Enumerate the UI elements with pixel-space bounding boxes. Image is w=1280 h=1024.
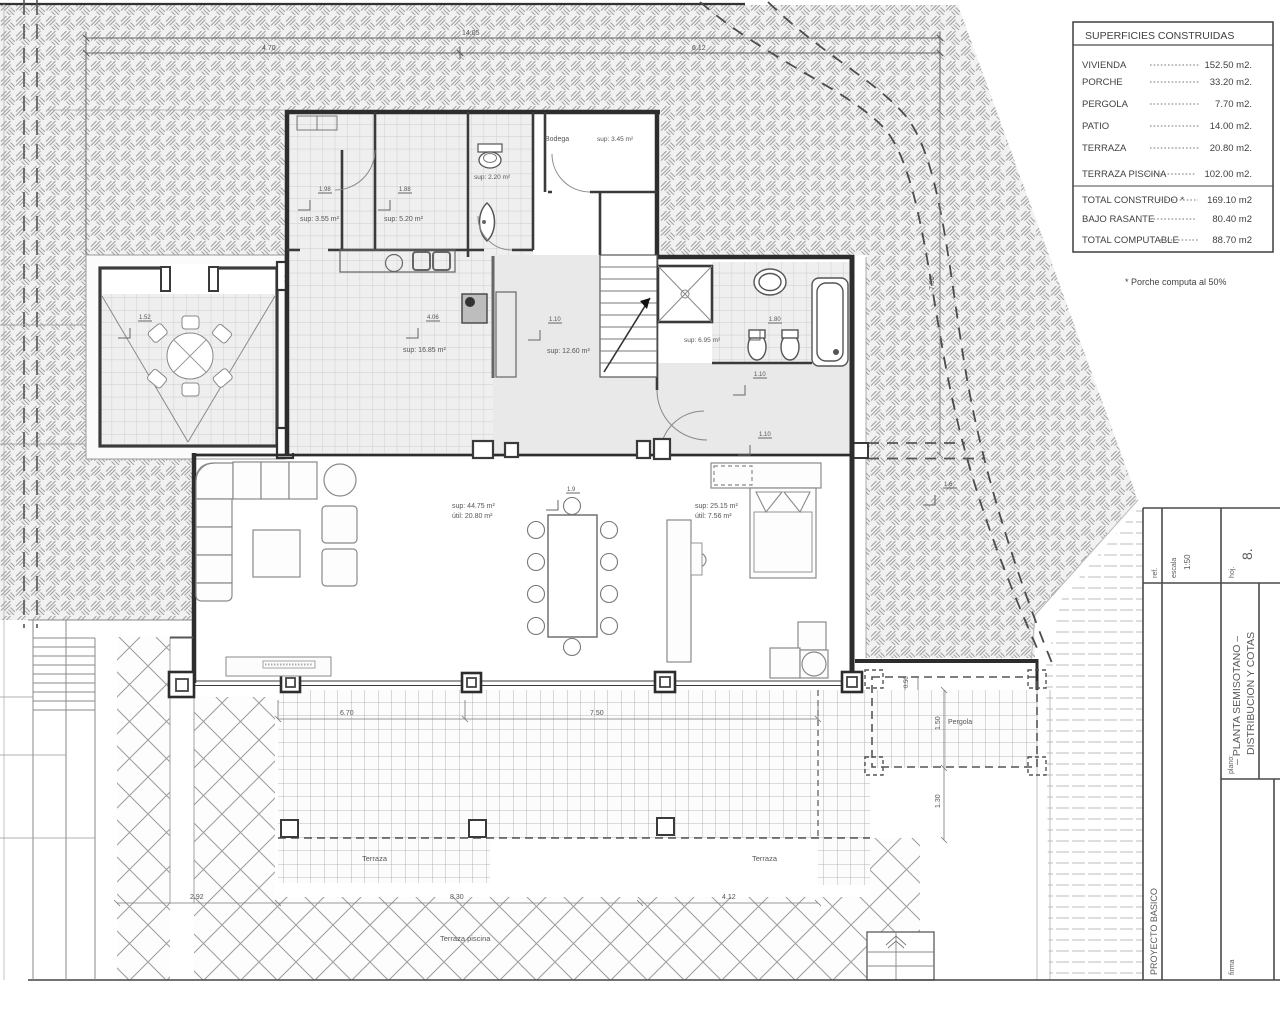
svg-text:1.10: 1.10 xyxy=(759,432,771,438)
svg-text:sup: 12.60 m²: sup: 12.60 m² xyxy=(547,348,590,355)
svg-text:Bodega: Bodega xyxy=(545,136,569,143)
svg-text:PROYECTO BASICO: PROYECTO BASICO xyxy=(1149,888,1159,975)
svg-text:sup: 3.45 m²: sup: 3.45 m² xyxy=(597,136,634,143)
svg-text:DISTRIBUCION Y COTAS: DISTRIBUCION Y COTAS xyxy=(1245,632,1257,755)
svg-text:88.70 m2: 88.70 m2 xyxy=(1212,235,1252,246)
svg-text:ref.: ref. xyxy=(1152,568,1159,578)
svg-text:0.50: 0.50 xyxy=(904,676,910,688)
svg-text:1.30: 1.30 xyxy=(935,794,942,808)
svg-text:20.80 m2.: 20.80 m2. xyxy=(1210,143,1252,154)
svg-text:sup: 3.55 m²: sup: 3.55 m² xyxy=(300,216,340,223)
svg-text:sup: 25.15 m²: sup: 25.15 m² xyxy=(695,503,738,510)
svg-text:80.40 m2: 80.40 m2 xyxy=(1212,214,1252,225)
svg-text:hoj.: hoj. xyxy=(1229,567,1236,578)
svg-text:1.10: 1.10 xyxy=(754,372,766,378)
svg-text:1.10: 1.10 xyxy=(549,317,561,323)
svg-text:1.88: 1.88 xyxy=(399,187,411,193)
svg-text:PATIO: PATIO xyxy=(1082,121,1109,132)
svg-text:6.12: 6.12 xyxy=(692,45,706,52)
svg-text:152.50 m2.: 152.50 m2. xyxy=(1204,60,1252,71)
svg-text:útil: 7.56 m²: útil: 7.56 m² xyxy=(695,513,732,520)
svg-text:BAJO RASANTE: BAJO RASANTE xyxy=(1082,214,1154,225)
svg-text:Pergola: Pergola xyxy=(948,719,972,726)
svg-text:sup: 44.75 m²: sup: 44.75 m² xyxy=(452,503,495,510)
svg-text:sup: 5.20 m²: sup: 5.20 m² xyxy=(384,216,424,223)
svg-text:TOTAL CONSTRUIDO *: TOTAL CONSTRUIDO * xyxy=(1082,195,1185,206)
svg-text:4.70: 4.70 xyxy=(262,45,276,52)
svg-text:TERRAZA PISCINA: TERRAZA PISCINA xyxy=(1082,169,1167,180)
svg-text:TOTAL COMPUTABLE: TOTAL COMPUTABLE xyxy=(1082,235,1179,246)
svg-text:7.50: 7.50 xyxy=(590,710,604,717)
svg-text:1.98: 1.98 xyxy=(319,187,331,193)
svg-text:14.05: 14.05 xyxy=(462,30,480,37)
svg-text:4.12: 4.12 xyxy=(722,894,736,901)
svg-text:1.9: 1.9 xyxy=(567,487,576,493)
svg-text:sup: 2.20 m²: sup: 2.20 m² xyxy=(474,174,511,181)
svg-text:8.30: 8.30 xyxy=(450,894,464,901)
svg-text:Terraza: Terraza xyxy=(752,854,778,863)
svg-text:Terraza: Terraza xyxy=(362,854,388,863)
svg-text:7.90: 7.90 xyxy=(929,276,936,290)
svg-text:TERRAZA: TERRAZA xyxy=(1082,143,1127,154)
svg-text:útil: 20.80 m²: útil: 20.80 m² xyxy=(452,513,493,520)
svg-text:– PLANTA SEMISOTANO –: – PLANTA SEMISOTANO – xyxy=(1231,636,1243,765)
svg-text:1:50: 1:50 xyxy=(1183,554,1192,570)
svg-text:PORCHE: PORCHE xyxy=(1082,77,1123,88)
svg-text:Terraza piscina: Terraza piscina xyxy=(440,934,491,943)
svg-text:VIVIENDA: VIVIENDA xyxy=(1082,60,1127,71)
svg-text:escala: escala xyxy=(1171,558,1178,578)
svg-text:2.92: 2.92 xyxy=(190,894,204,901)
svg-text:169.10 m2: 169.10 m2 xyxy=(1207,195,1252,206)
svg-text:sup: 16.85 m²: sup: 16.85 m² xyxy=(403,347,446,354)
svg-text:102.00 m2.: 102.00 m2. xyxy=(1204,169,1252,180)
svg-text:33.20 m2.: 33.20 m2. xyxy=(1210,77,1252,88)
svg-text:PERGOLA: PERGOLA xyxy=(1082,99,1129,110)
svg-text:4.06: 4.06 xyxy=(427,315,439,321)
svg-text:* Porche computa al 50%: * Porche computa al 50% xyxy=(1125,277,1227,287)
svg-text:1.80: 1.80 xyxy=(769,317,781,323)
svg-text:1.6: 1.6 xyxy=(944,482,953,488)
svg-text:8.: 8. xyxy=(1239,548,1255,560)
svg-text:SUPERFICIES CONSTRUIDAS: SUPERFICIES CONSTRUIDAS xyxy=(1085,30,1234,42)
svg-text:7.70 m2.: 7.70 m2. xyxy=(1215,99,1252,110)
svg-text:6.70: 6.70 xyxy=(340,710,354,717)
svg-text:1.52: 1.52 xyxy=(139,315,151,321)
svg-text:firma: firma xyxy=(1229,959,1236,975)
svg-text:1.50: 1.50 xyxy=(935,716,942,730)
svg-text:sup: 6.95 m²: sup: 6.95 m² xyxy=(684,337,721,344)
svg-text:14.00 m2.: 14.00 m2. xyxy=(1210,121,1252,132)
